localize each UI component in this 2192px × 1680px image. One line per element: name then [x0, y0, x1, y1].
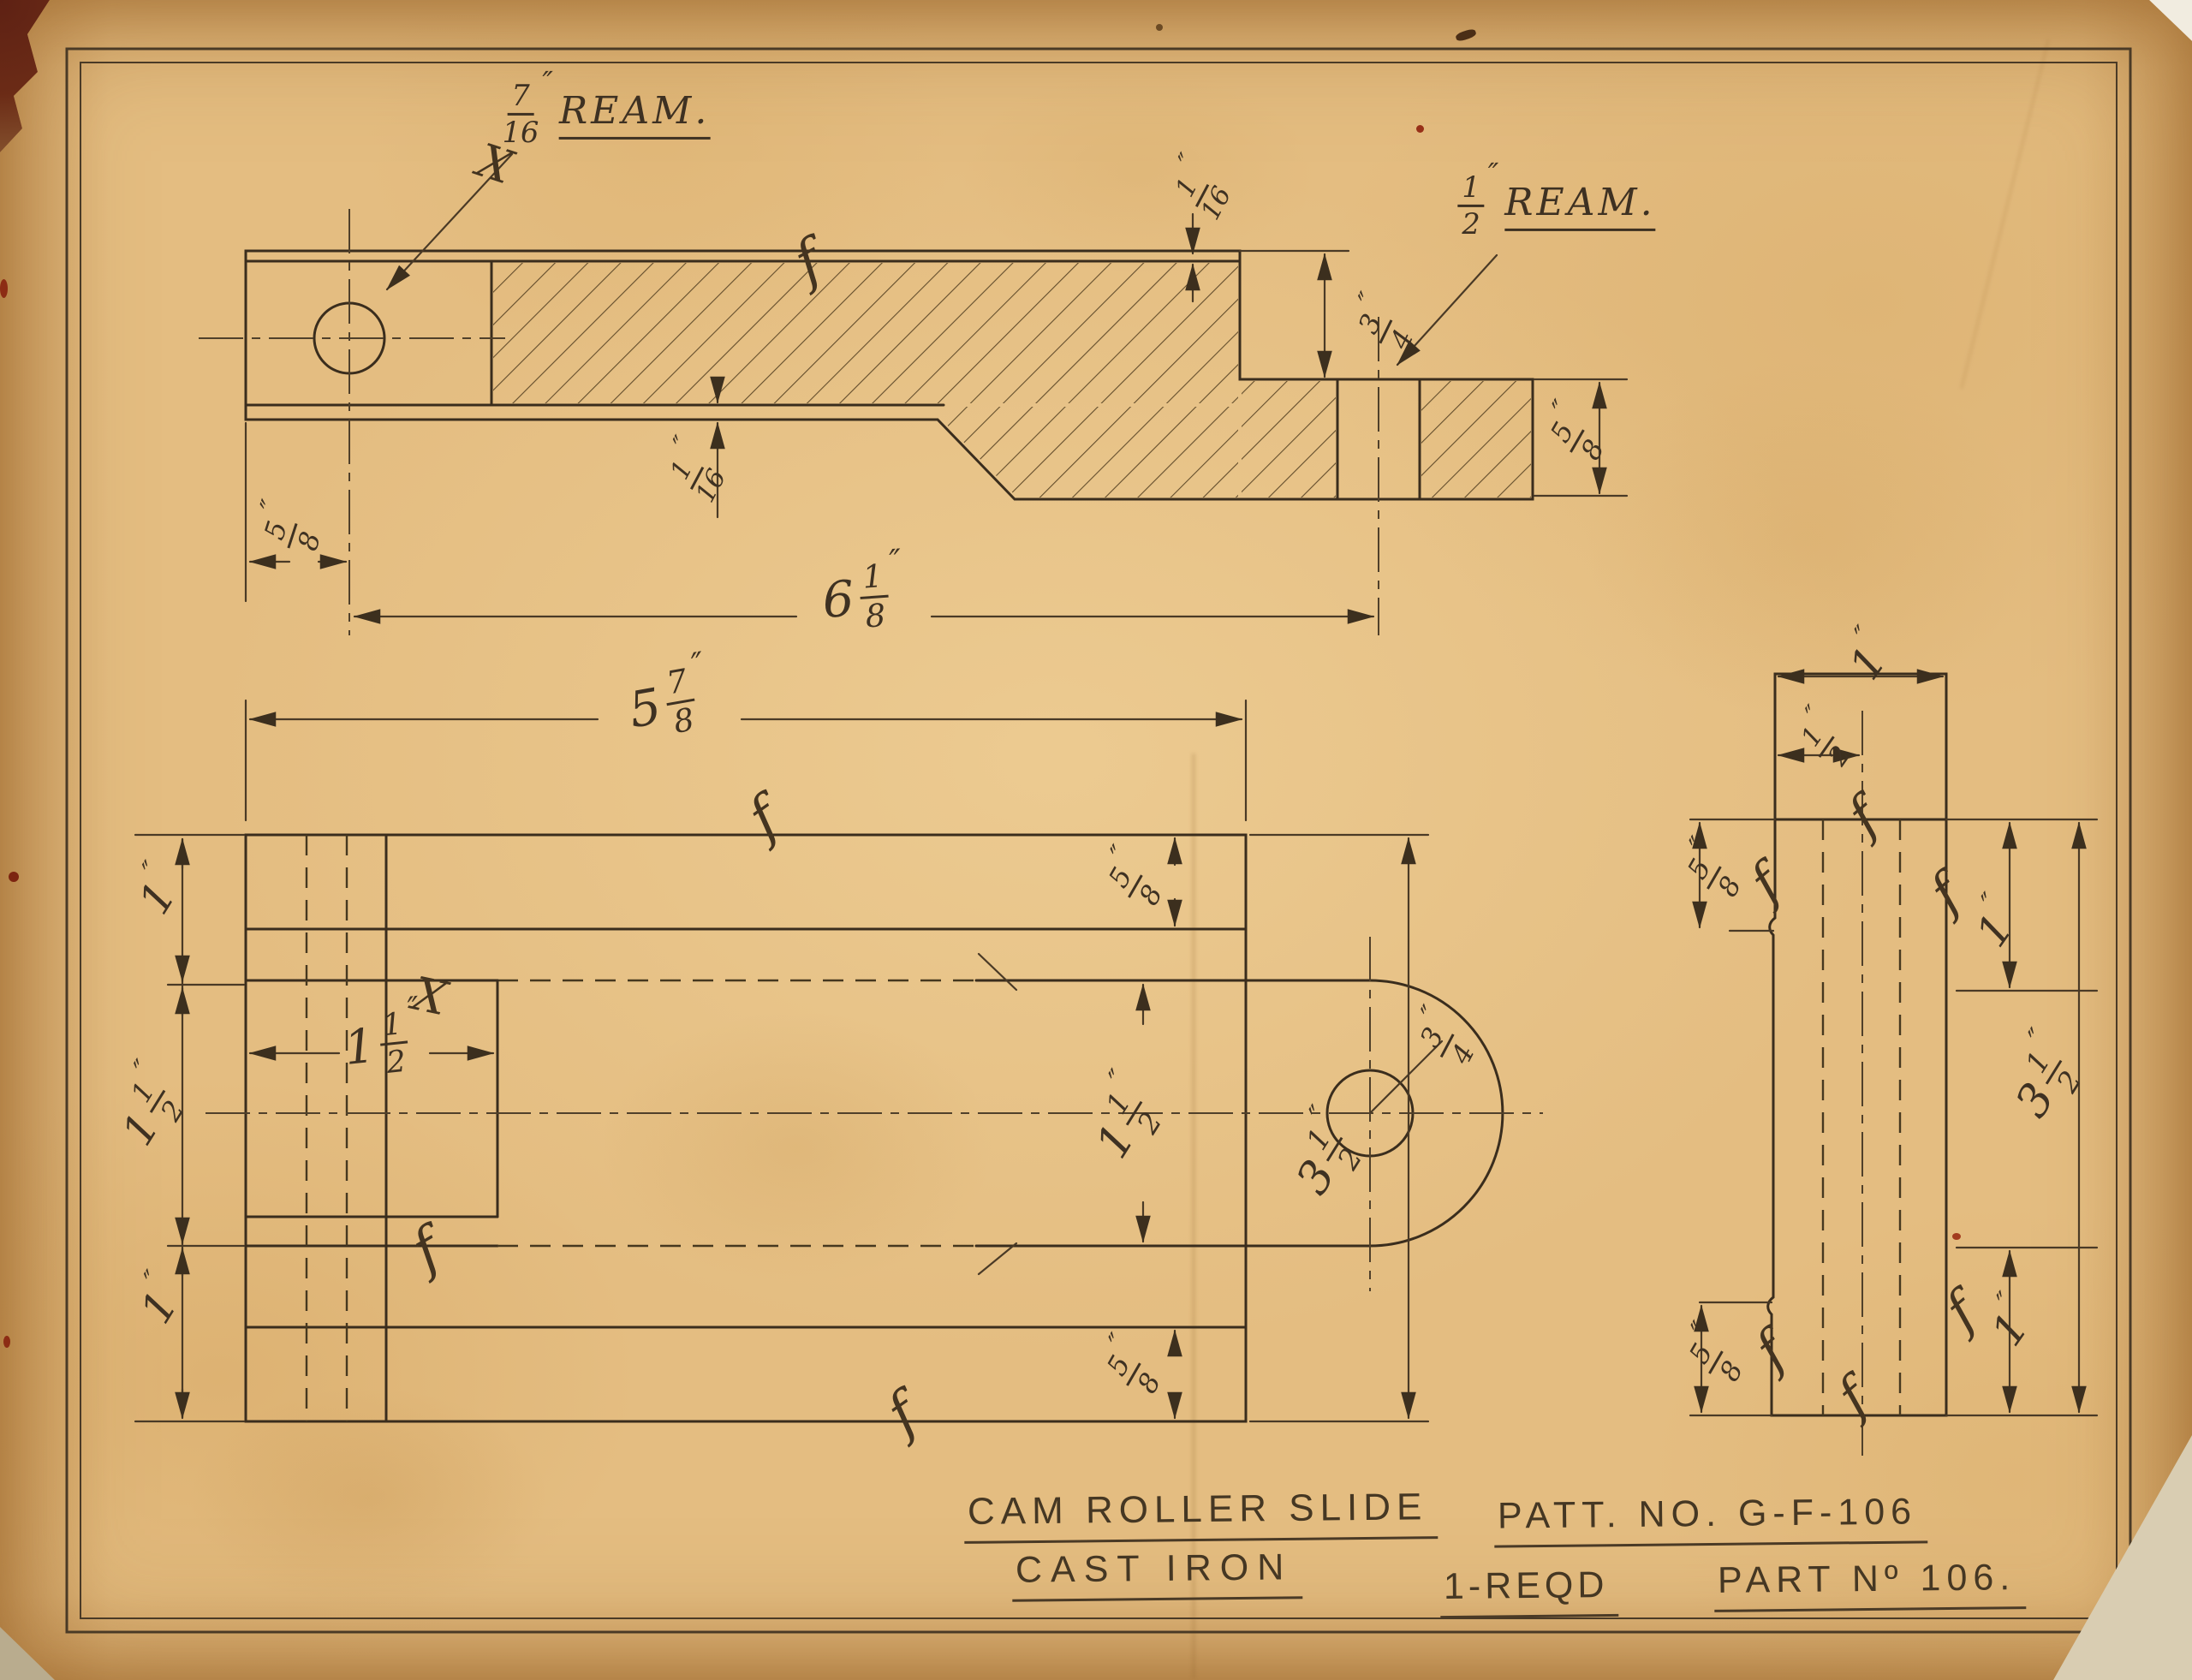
- finish-mark: f: [1828, 1371, 1877, 1424]
- finish-mark: f: [878, 1385, 927, 1444]
- finish-mark: f: [1746, 1325, 1795, 1378]
- title-pattern-no: PATT. NO. G-F-106: [1494, 1491, 1928, 1547]
- dim-1-bottom-left: 1″: [134, 1272, 192, 1330]
- ream-7-16-callout: 716″REAM.: [503, 81, 711, 146]
- dim-3-4-radius: 34″: [1414, 1007, 1487, 1071]
- dim-1-1-2-left: 112″: [106, 1063, 198, 1158]
- finish-mark: f: [1921, 867, 1969, 920]
- finish-mark: X: [409, 971, 451, 1023]
- dim-5-7-8-overall: 578″: [623, 662, 716, 746]
- dim-3-1-2-side: 312″: [2000, 1031, 2095, 1129]
- dim-1-side-right-bottom: 1″: [1985, 1295, 2043, 1353]
- dim-1-top-left: 1″: [132, 863, 190, 920]
- dim-1-side-right-top: 1″: [1969, 896, 2028, 954]
- finish-mark: f: [1838, 790, 1887, 843]
- dim-3-4-step: 34″: [1352, 294, 1426, 357]
- title-part-no: PART Nº 106.: [1714, 1557, 2027, 1612]
- dim-5-8-front-bottom: 58″: [1100, 1336, 1174, 1402]
- annotation-layer: 716″REAM.12″REAM.116″34″58″116″58″618″57…: [0, 0, 2192, 1680]
- dim-6-1-8-overall: 618″: [820, 559, 906, 635]
- finish-mark: f: [403, 1220, 450, 1279]
- finish-mark: f: [1741, 857, 1790, 910]
- dim-1-16-bottom: 116″: [663, 438, 737, 507]
- scanned-drawing-sheet: { "title_block": { "part_name": "CAM ROL…: [0, 0, 2192, 1680]
- title-quantity: 1-REQD: [1440, 1564, 1619, 1618]
- dim-5-8-end: 58″: [1544, 402, 1617, 468]
- dim-5-8-hole-offset: 58″: [259, 501, 331, 558]
- dim-1-side-top: 1″: [1843, 629, 1901, 687]
- dim-5-8-front-top: 58″: [1102, 848, 1176, 914]
- dim-1-2-side-top: 12″: [1796, 709, 1867, 775]
- title-part-name: CAM ROLLER SLIDE: [964, 1486, 1438, 1544]
- dim-3-1-2-front: 312″: [1281, 1108, 1376, 1206]
- finish-mark: f: [786, 232, 831, 292]
- drawing-sheet: 716″REAM.12″REAM.116″34″58″116″58″618″57…: [0, 0, 2192, 1680]
- dim-1-16-top: 116″: [1168, 156, 1242, 224]
- finish-mark: f: [739, 789, 789, 848]
- ream-1-2-callout: 12″REAM.: [1457, 173, 1655, 238]
- dim-1-1-2-slot: 112″: [1081, 1072, 1176, 1171]
- title-material: CAST IRON: [1012, 1546, 1303, 1602]
- finish-mark: f: [1936, 1285, 1985, 1338]
- finish-mark: X: [472, 137, 517, 191]
